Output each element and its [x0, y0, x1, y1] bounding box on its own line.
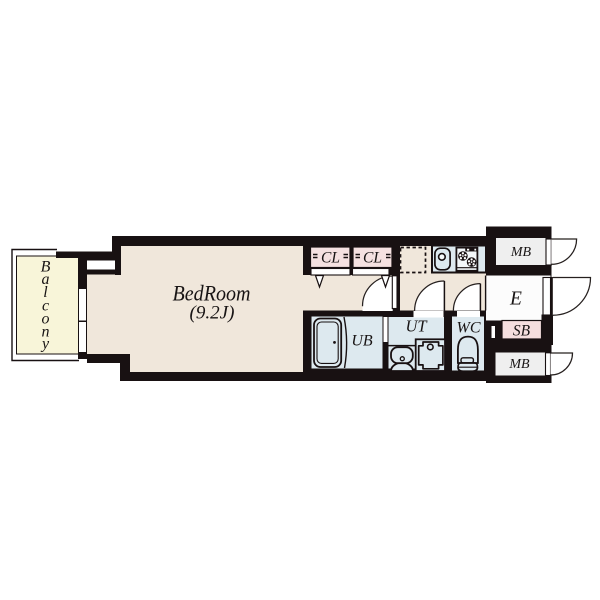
svg-text:CL: CL [363, 250, 382, 267]
svg-text:(9.2J): (9.2J) [190, 304, 235, 324]
svg-text:CL: CL [321, 250, 340, 267]
svg-text:SB: SB [513, 323, 531, 340]
svg-text:UB: UB [351, 333, 373, 350]
svg-text:E: E [509, 289, 522, 310]
svg-text:MB: MB [508, 357, 530, 372]
svg-text:WC: WC [457, 320, 481, 337]
svg-text:y: y [40, 336, 50, 353]
svg-text:MB: MB [510, 245, 532, 260]
svg-text:BedRoom: BedRoom [173, 281, 251, 306]
svg-text:UT: UT [405, 317, 428, 336]
